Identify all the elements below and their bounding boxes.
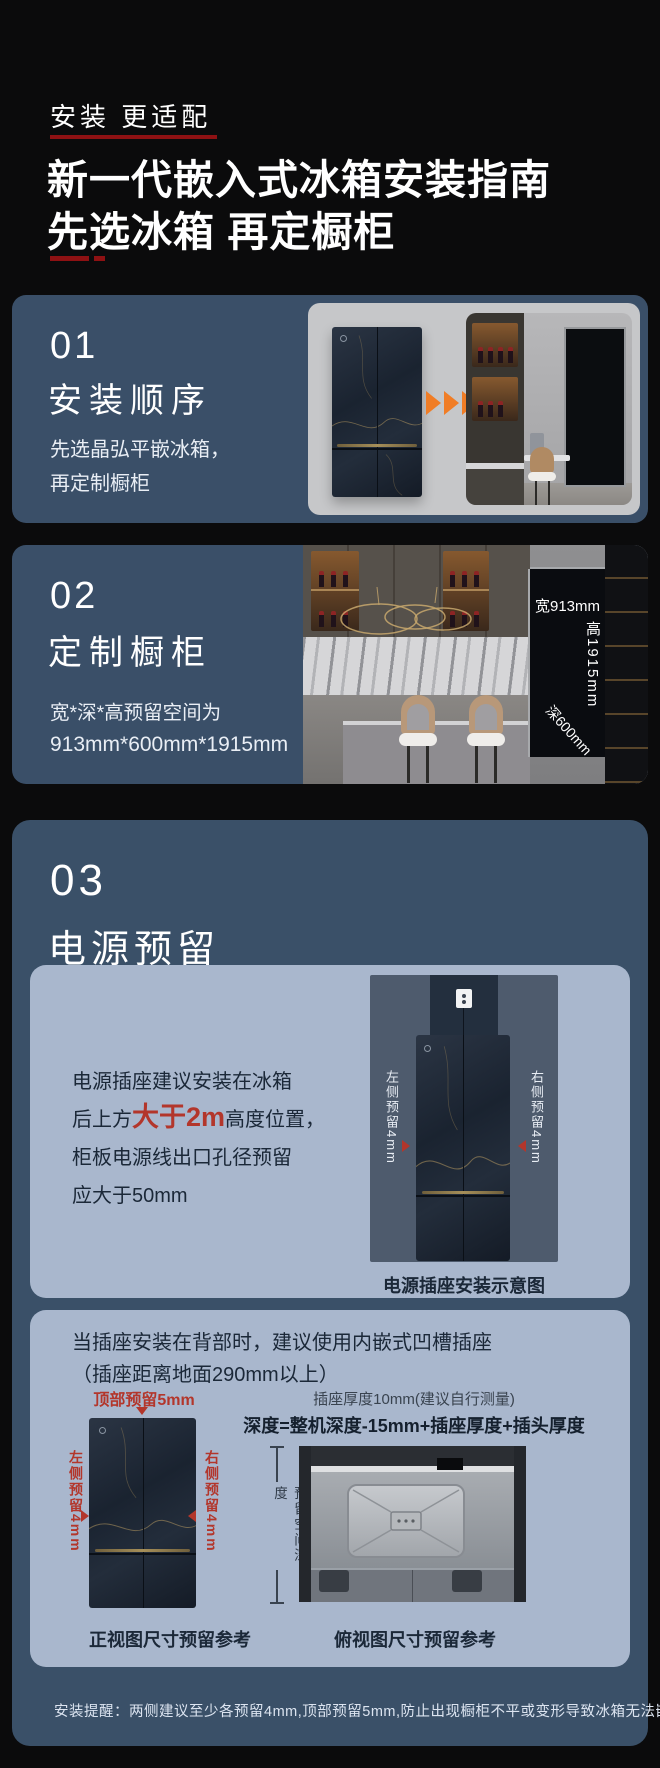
step2-title: 定制橱柜	[48, 625, 212, 674]
socket-diagram-caption: 电源插座安装示意图	[360, 1272, 568, 1298]
wine-bottle	[498, 401, 503, 417]
socket-text-line: 柜板电源线出口孔径预留	[72, 1141, 292, 1170]
door-seam	[412, 1570, 413, 1602]
recess-plate-detail	[349, 1486, 463, 1556]
marble-backsplash	[303, 637, 530, 695]
cabinet-side-wall	[514, 1446, 526, 1602]
marble-texture	[303, 637, 530, 695]
hero-title-line1: 新一代嵌入式冰箱安装指南	[47, 146, 551, 206]
dimension-line	[276, 1448, 278, 1482]
red-arrow-left-icon	[188, 1510, 196, 1522]
chair-legs	[475, 746, 497, 783]
chair-seat	[399, 733, 437, 746]
chair-back-cutout	[475, 704, 497, 730]
chair-back	[530, 447, 554, 473]
wine-bottle	[331, 611, 336, 627]
step1-desc-line: 再定制橱柜	[50, 467, 150, 496]
socket-thickness-note: 插座厚度10mm(建议自行测量)	[229, 1388, 599, 1409]
install-reminder-note: 安装提醒：两侧建议至少各预留4mm,顶部预留5mm,防止出现橱柜不平或变形导致冰…	[54, 1700, 624, 1721]
step2-card: 02 定制橱柜 宽*深*高预留空间为 913mm*600mm*1915mm	[12, 545, 648, 784]
custom-cabinet-photo: 宽913mm 高1915mm 深600mm	[303, 545, 648, 784]
fridge-image	[332, 327, 422, 497]
left-reserve-label: 左侧预留4mm	[66, 1450, 86, 1610]
bar-chair	[467, 695, 507, 783]
arrow-right-icon	[444, 391, 459, 415]
dimension-line	[276, 1570, 278, 1602]
socket-recess-plate	[347, 1484, 465, 1558]
wine-bottle	[488, 401, 493, 417]
reserved-cabinet-opening: 宽913mm 高1915mm 深600mm	[530, 569, 605, 757]
side-display-cabinet	[605, 545, 648, 784]
hinge-bracket	[319, 1570, 349, 1592]
left-reserve-label: 左侧预留4mm	[382, 1070, 401, 1230]
socket-text-part: 后上方	[72, 1109, 132, 1131]
wine-bottle	[319, 611, 324, 627]
chair-back	[469, 695, 503, 735]
chair-seat	[528, 472, 556, 481]
red-arrow-left-icon	[518, 1140, 526, 1152]
red-arrow-right-icon	[402, 1140, 410, 1152]
fridge-handle	[95, 1549, 189, 1552]
brand-logo-icon	[99, 1427, 106, 1434]
power-socket-subcard: 电源插座建议安装在冰箱 后上方大于2m高度位置， 柜板电源线出口孔径预留 应大于…	[30, 965, 630, 1298]
fridge-door-seam	[377, 327, 378, 497]
wine-bottle	[474, 571, 479, 587]
socket-height-highlight: 大于2m	[132, 1102, 225, 1132]
fridge-top-view	[299, 1446, 526, 1602]
ring-pendant-lamp	[337, 587, 477, 643]
fridge-alcove-opening	[566, 329, 624, 485]
wine-niche	[472, 323, 518, 367]
fridge-image	[416, 1035, 510, 1261]
red-arrow-right-icon	[81, 1510, 89, 1522]
step3-number: 03	[50, 856, 107, 906]
hero-eyebrow: 安装 更适配	[50, 97, 211, 134]
socket-text-line: 后上方大于2m高度位置，	[72, 1095, 325, 1134]
fridge-door-seam	[463, 1035, 464, 1261]
wine-bottle	[462, 571, 467, 587]
display-shelves	[605, 545, 648, 784]
fridge-door-seam	[416, 1195, 510, 1197]
kitchen-photo	[466, 313, 632, 505]
power-cord	[463, 1008, 464, 1035]
hinge-bracket	[452, 1570, 482, 1592]
step1-desc-line: 先选晶弘平嵌冰箱，	[50, 433, 230, 462]
red-dash-decoration	[50, 256, 89, 261]
red-dash-decoration	[94, 256, 105, 261]
cabinet-side-wall	[299, 1446, 311, 1602]
depth-formula: 深度=整机深度-15mm+插座厚度+插头厚度	[229, 1412, 599, 1438]
step1-title: 安装顺序	[48, 373, 212, 422]
reserve-depth-dimension: 预留空间深度	[268, 1446, 286, 1604]
step1-photo-panel	[308, 303, 640, 515]
hero-eyebrow-underline	[50, 135, 217, 139]
fridge-front-view	[89, 1418, 196, 1608]
wine-cabinet	[466, 313, 524, 463]
chair-back	[401, 695, 435, 735]
fridge-door-seam	[89, 1553, 196, 1555]
wine-bottle	[343, 571, 348, 587]
wine-bottle	[498, 347, 503, 363]
fridge-door-seam	[332, 448, 422, 450]
brand-logo-icon	[340, 335, 347, 342]
chair-seat	[467, 733, 505, 746]
socket-text-part: 高度位置，	[225, 1109, 325, 1131]
chair-back-cutout	[407, 704, 429, 730]
wine-bottle	[478, 401, 483, 417]
chair-legs	[535, 481, 550, 505]
step2-desc-line: 913mm*600mm*1915mm	[50, 733, 288, 757]
recess-text-line: （插座距离地面290mm以上）	[72, 1358, 339, 1387]
wine-bottle	[450, 571, 455, 587]
bar-chair	[399, 695, 439, 783]
wine-bottle	[478, 347, 483, 363]
top-view-caption: 俯视图尺寸预留参考	[315, 1626, 515, 1652]
step1-number: 01	[50, 325, 98, 368]
product-install-guide-page: 安装 更适配 新一代嵌入式冰箱安装指南 先选冰箱 再定橱柜 01 安装顺序 先选…	[0, 0, 660, 1768]
wine-bottle	[488, 347, 493, 363]
recessed-socket-subcard: 当插座安装在背部时，建议使用内嵌式凹槽插座 （插座距离地面290mm以上） 顶部…	[30, 1310, 630, 1667]
fridge-handle	[337, 444, 416, 447]
wine-niche	[472, 377, 518, 421]
base-cabinet	[466, 469, 524, 505]
front-view-caption: 正视图尺寸预留参考	[70, 1626, 270, 1652]
socket-text-line: 应大于50mm	[72, 1179, 188, 1208]
socket-text-line: 电源插座建议安装在冰箱	[72, 1065, 292, 1094]
cabinet-back-wall	[311, 1446, 514, 1466]
chair-legs	[407, 746, 429, 783]
step2-desc-line: 宽*深*高预留空间为	[50, 696, 221, 725]
step2-number: 02	[50, 575, 98, 618]
width-dimension-label: 宽913mm	[530, 595, 605, 616]
fridge-door-seam	[143, 1418, 144, 1608]
bar-chair	[530, 447, 556, 505]
recess-text-line: 当插座安装在背部时，建议使用内嵌式凹槽插座	[72, 1326, 492, 1355]
red-arrow-down-icon	[136, 1407, 148, 1415]
step1-card: 01 安装顺序 先选晶弘平嵌冰箱， 再定制橱柜	[12, 295, 648, 523]
arrow-right-icon	[426, 391, 441, 415]
wine-bottle	[508, 347, 513, 363]
wine-bottle	[331, 571, 336, 587]
plug-icon	[437, 1458, 463, 1470]
right-reserve-label: 右侧预留4mm	[202, 1450, 222, 1610]
socket-install-diagram: 左侧预留4mm 右侧预留4mm	[370, 975, 558, 1262]
wine-bottle	[319, 571, 324, 587]
power-socket-icon	[456, 989, 472, 1008]
right-reserve-label: 右侧预留4mm	[527, 1070, 546, 1230]
dimension-tick	[270, 1602, 284, 1604]
fridge-handle	[422, 1191, 505, 1194]
hero-title-line2: 先选冰箱 再定橱柜	[47, 198, 395, 258]
step3-card: 03 电源预留 电源插座建议安装在冰箱 后上方大于2m高度位置， 柜板电源线出口…	[12, 820, 648, 1746]
